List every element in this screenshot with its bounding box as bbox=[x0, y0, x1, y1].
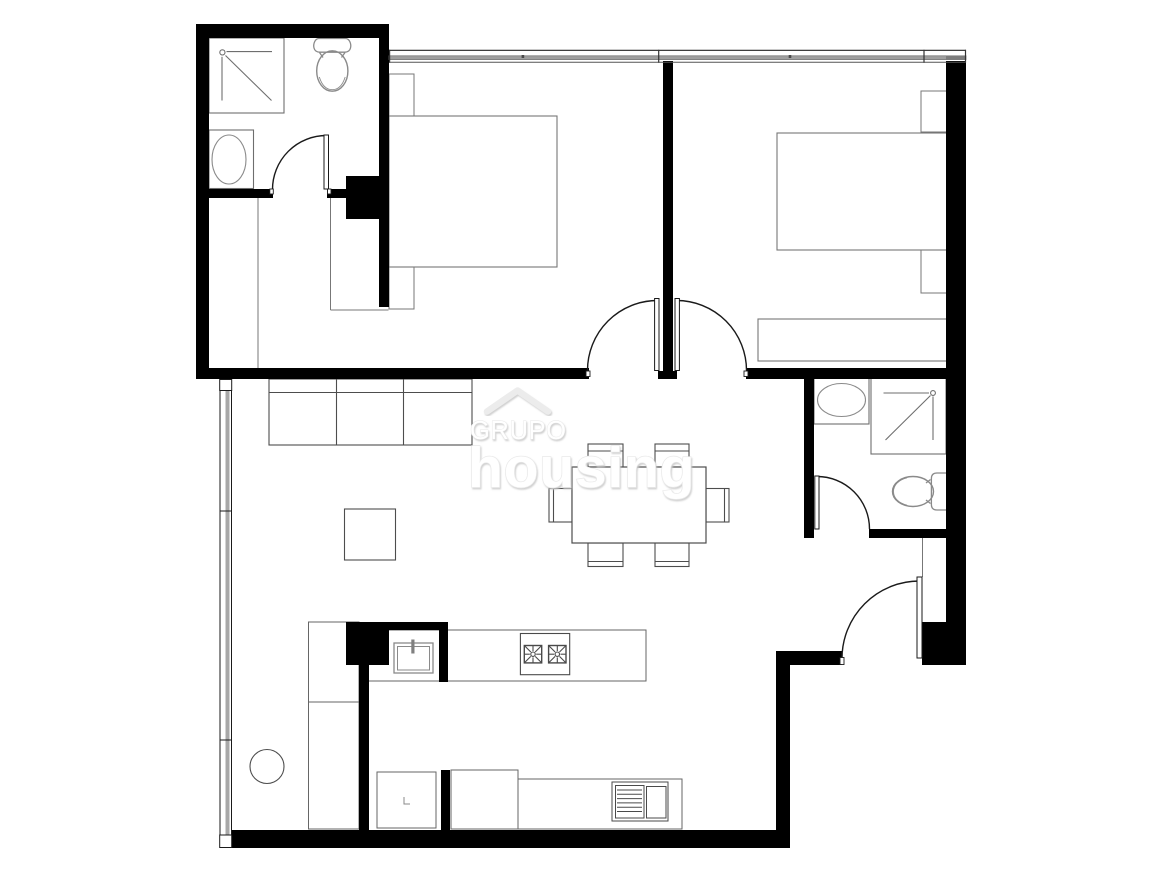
svg-text:housing: housing bbox=[468, 436, 695, 500]
